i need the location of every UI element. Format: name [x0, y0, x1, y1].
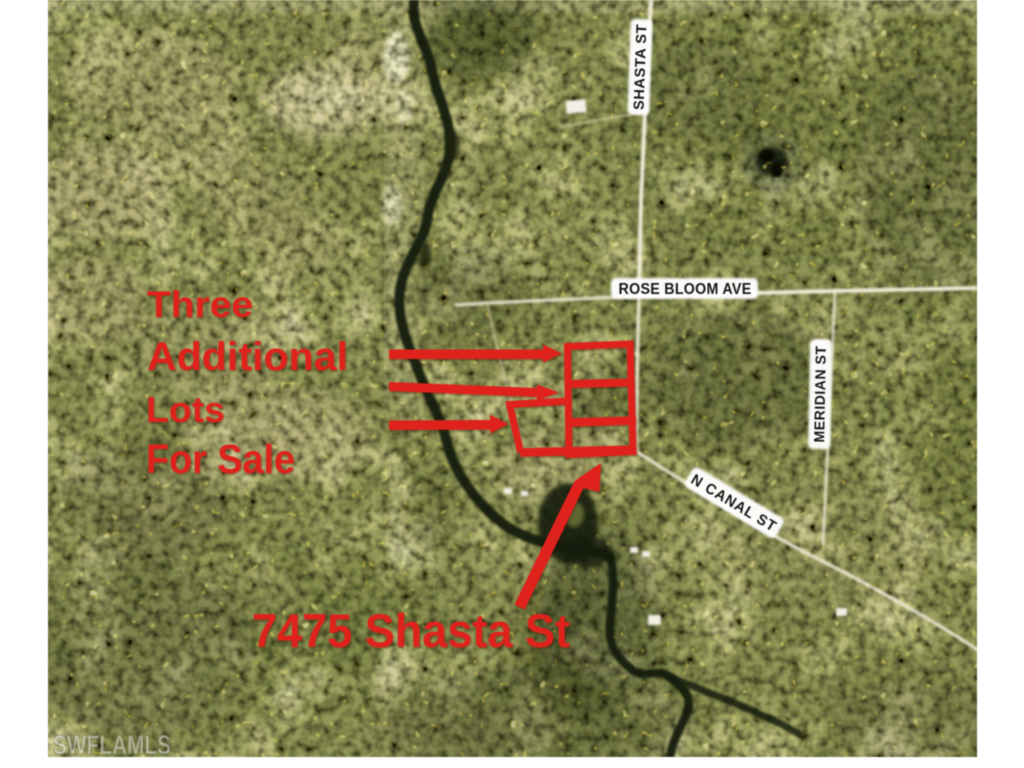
svg-text:ROSE BLOOM AVE: ROSE BLOOM AVE [619, 281, 752, 298]
svg-text:Additional: Additional [147, 335, 348, 379]
svg-text:SWFLAMLS: SWFLAMLS [53, 730, 171, 760]
svg-text:MERIDIAN ST: MERIDIAN ST [812, 345, 830, 442]
svg-text:For Sale: For Sale [146, 436, 295, 482]
svg-text:Lots: Lots [146, 389, 225, 430]
svg-text:Three: Three [147, 284, 253, 325]
svg-text:7475 Shasta St: 7475 Shasta St [252, 604, 570, 657]
svg-text:SHASTA ST: SHASTA ST [632, 24, 651, 111]
